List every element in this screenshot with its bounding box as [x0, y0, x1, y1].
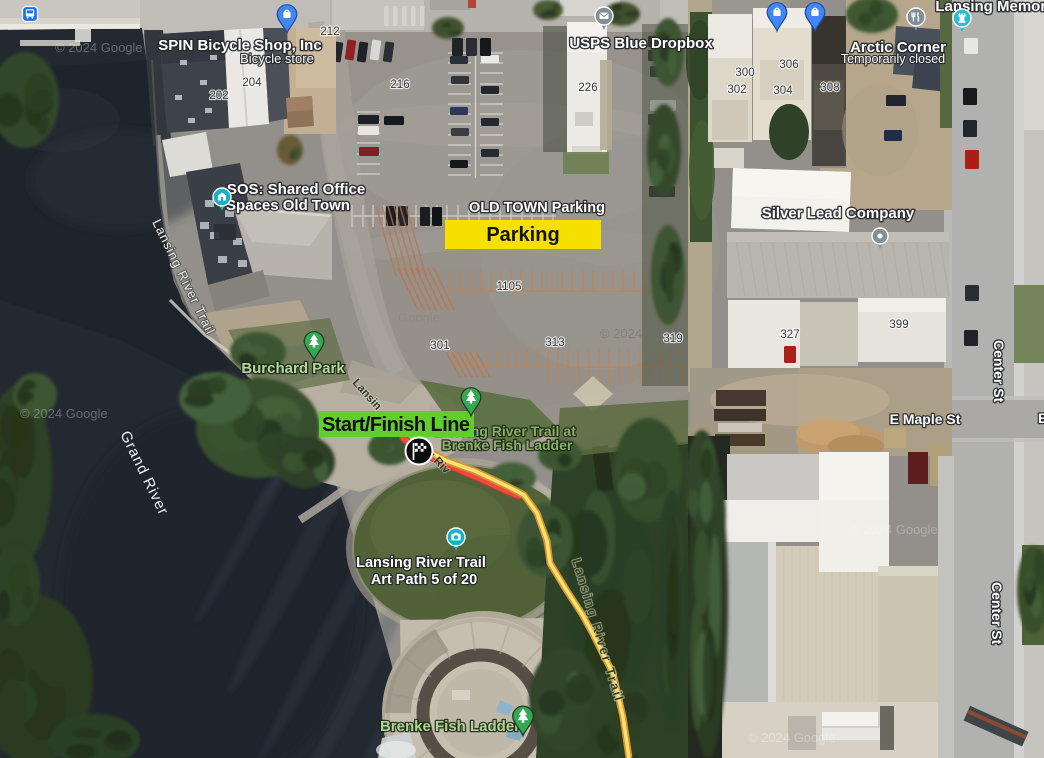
svg-text:Spaces Old Town: Spaces Old Town	[226, 197, 350, 214]
svg-text:Start/Finish Line: Start/Finish Line	[322, 414, 470, 436]
svg-text:© 2024 Google: © 2024 Google	[850, 522, 938, 537]
svg-text:Center St: Center St	[989, 582, 1005, 645]
svg-text:Temporarily closed: Temporarily closed	[841, 52, 945, 66]
svg-text:E Maple St: E Maple St	[890, 411, 961, 427]
svg-text:202: 202	[209, 90, 228, 102]
svg-text:Center St: Center St	[991, 340, 1007, 403]
svg-text:© 2024 Google: © 2024 Google	[748, 730, 836, 745]
svg-text:204: 204	[242, 77, 262, 89]
svg-text:1105: 1105	[497, 281, 522, 293]
svg-text:Google: Google	[398, 310, 440, 325]
svg-text:Silver Lead Company: Silver Lead Company	[762, 205, 915, 222]
svg-text:© 2024 Google: © 2024 Google	[55, 40, 143, 55]
svg-text:Lansing Memoria: Lansing Memoria	[935, 0, 1044, 15]
svg-text:308: 308	[820, 82, 839, 94]
svg-text:399: 399	[889, 319, 908, 331]
svg-text:313: 313	[545, 337, 564, 349]
svg-text:300: 300	[735, 67, 754, 79]
svg-text:306: 306	[779, 59, 798, 71]
svg-text:Art Path 5 of 20: Art Path 5 of 20	[371, 572, 477, 588]
svg-text:304: 304	[773, 85, 793, 97]
svg-text:Lansing River Trail: Lansing River Trail	[356, 555, 486, 571]
svg-text:SOS: Shared Office: SOS: Shared Office	[227, 181, 365, 198]
svg-text:Parking: Parking	[486, 224, 559, 246]
svg-text:© 2024 Google: © 2024 Google	[20, 406, 108, 421]
svg-text:Brenke Fish Ladder: Brenke Fish Ladder	[380, 718, 520, 735]
svg-text:OLD TOWN Parking: OLD TOWN Parking	[469, 200, 605, 216]
svg-text:302: 302	[727, 84, 746, 96]
svg-text:Brenke Fish Ladder: Brenke Fish Ladder	[442, 437, 573, 453]
svg-text:USPS Blue Dropbox: USPS Blue Dropbox	[569, 35, 713, 52]
svg-text:212: 212	[320, 26, 339, 38]
svg-text:Burchard Park: Burchard Park	[241, 360, 345, 377]
svg-text:E M: E M	[1038, 410, 1044, 426]
svg-text:327: 327	[780, 329, 799, 341]
svg-text:Bicycle store: Bicycle store	[240, 51, 314, 66]
svg-text:319: 319	[663, 333, 682, 345]
svg-text:301: 301	[430, 340, 449, 352]
svg-text:226: 226	[578, 82, 597, 94]
svg-text:216: 216	[390, 79, 409, 91]
